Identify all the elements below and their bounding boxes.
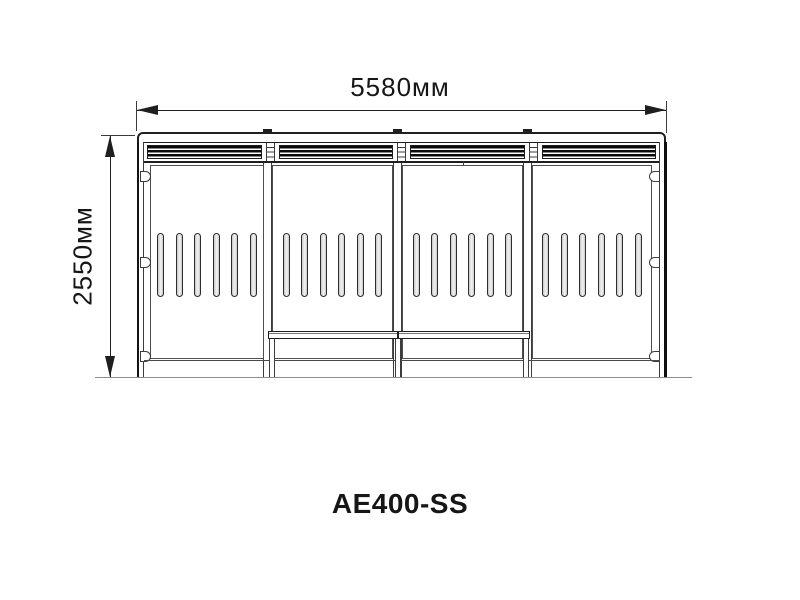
vent-slot	[635, 233, 642, 297]
vent-slot	[487, 233, 494, 297]
roof-louver-block	[279, 145, 394, 159]
roof-post-connector	[525, 143, 542, 161]
shelter-right-frame-post	[659, 142, 667, 377]
vent-slot	[616, 233, 623, 297]
bench-seat-divider	[397, 331, 399, 339]
wall-panel	[402, 165, 523, 359]
bench-leg	[395, 338, 401, 377]
roof-post-connector	[393, 143, 410, 161]
vent-slot	[157, 233, 164, 297]
vent-slot	[301, 233, 308, 297]
vent-slot	[579, 233, 586, 297]
bench-leg	[269, 338, 275, 377]
side-fixing-tab-right	[649, 171, 660, 182]
vent-slot	[598, 233, 605, 297]
roof-post-connector-ladder	[266, 143, 275, 161]
vent-slot	[176, 233, 183, 297]
ground-line	[95, 377, 692, 378]
vent-slot	[450, 233, 457, 297]
roof-post-connector	[262, 143, 279, 161]
vent-slot	[283, 233, 290, 297]
dim-arrow-right-icon	[645, 105, 666, 115]
dim-arrow-down-icon	[105, 356, 115, 377]
roof-louver-block	[147, 145, 262, 159]
side-fixing-tab-left	[140, 257, 151, 268]
wall-panel	[532, 165, 652, 359]
vent-slot	[468, 233, 475, 297]
vent-slot	[561, 233, 568, 297]
dim-arrow-up-icon	[105, 136, 115, 157]
roof-mount-tick	[263, 129, 272, 133]
side-fixing-tab-right	[649, 257, 660, 268]
width-extension-line-right	[666, 101, 667, 133]
roof-mount-tick	[523, 129, 532, 133]
roof-post-connector-ladder	[397, 143, 406, 161]
vent-slot	[194, 233, 201, 297]
vent-slot	[505, 233, 512, 297]
dim-arrow-left-icon	[137, 105, 158, 115]
roof-post-connector-ladder	[529, 143, 538, 161]
vent-slot	[357, 233, 364, 297]
panel-bottom-rail	[144, 360, 660, 361]
vent-slot	[250, 233, 257, 297]
vent-slot	[431, 233, 438, 297]
vent-slot	[542, 233, 549, 297]
vent-slot	[320, 233, 327, 297]
vent-slot	[338, 233, 345, 297]
roof-louver-block	[542, 145, 657, 159]
vent-slot	[375, 233, 382, 297]
wall-panel	[150, 165, 264, 359]
height-extension-line-top	[101, 135, 135, 136]
shelter-roof-cap	[137, 132, 666, 143]
roof-mount-tick	[393, 129, 402, 133]
width-extension-line-left	[136, 101, 137, 131]
drawing-canvas: 5580мм 2550мм AE400-SS	[0, 0, 800, 600]
roof-louver-row	[137, 143, 666, 161]
height-dimension-line	[110, 136, 111, 377]
bench-seat-edge-line	[269, 333, 529, 334]
vent-slot	[413, 233, 420, 297]
bench-seat-bar	[268, 331, 530, 339]
model-name-label: AE400-SS	[0, 488, 800, 520]
width-dimension-line	[137, 110, 666, 111]
side-fixing-tab-left	[140, 171, 151, 182]
bench-leg	[523, 338, 529, 377]
vent-slot	[213, 233, 220, 297]
height-dimension-label: 2550мм	[68, 206, 99, 306]
wall-panel	[272, 165, 393, 359]
roof-louver-block	[410, 145, 525, 159]
vent-slot	[231, 233, 238, 297]
width-dimension-label: 5580мм	[0, 72, 800, 103]
